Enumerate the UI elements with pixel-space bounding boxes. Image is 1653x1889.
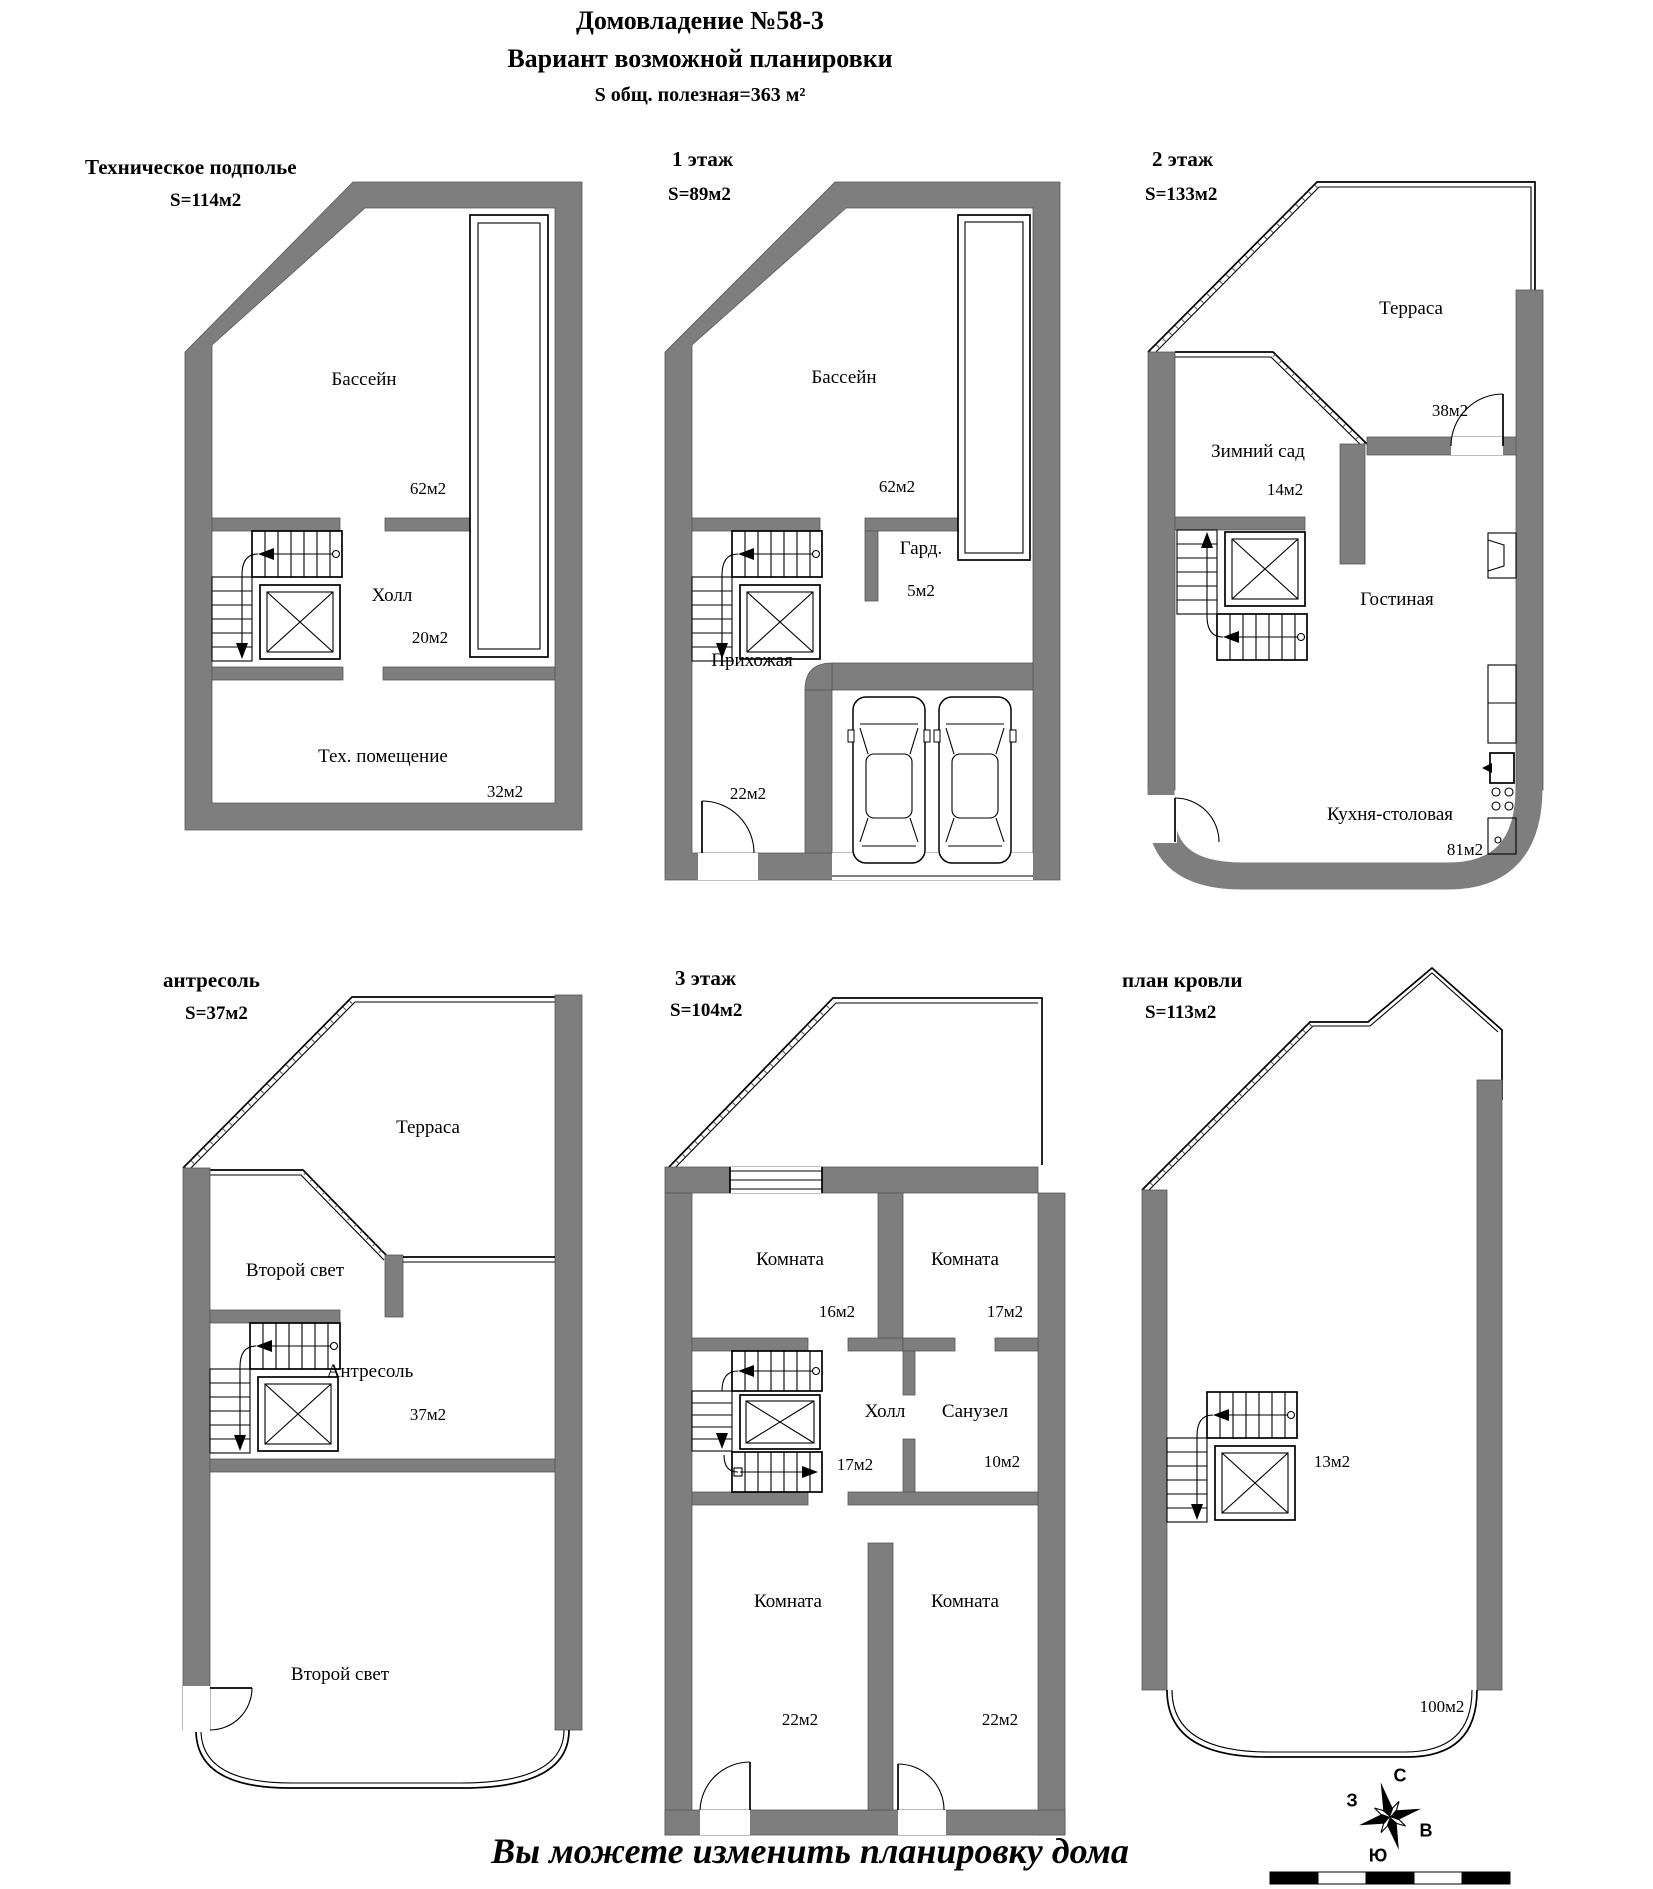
compass-east: В xyxy=(1420,1821,1433,1842)
room-area-pool: 62м2 xyxy=(410,479,446,499)
room-label-terrace: Терраса xyxy=(1379,298,1443,320)
room-label-hall: Холл xyxy=(372,585,413,607)
room-label-pool: Бассейн xyxy=(331,369,396,391)
room-area-room-tl: 16м2 xyxy=(819,1302,855,1322)
kitchen-fixtures-icon xyxy=(1482,533,1516,854)
plan-roof-area: S=113м2 xyxy=(1145,1002,1216,1024)
room-label-room-bl: Комната xyxy=(754,1591,822,1613)
room-label-entrance: Прихожая xyxy=(711,650,793,672)
compass-rose-icon xyxy=(1350,1774,1430,1858)
plan-floor3-title: 3 этаж xyxy=(675,966,736,991)
plans-drawing xyxy=(0,0,1653,1889)
stairs-icon xyxy=(1167,1392,1297,1522)
room-label-hall: Холл xyxy=(865,1401,906,1423)
room-label-mezzanine: Антресоль xyxy=(327,1361,414,1383)
plan-floor2-title: 2 этаж xyxy=(1152,147,1213,172)
plan-basement-title: Техническое подполье xyxy=(85,155,297,180)
car-icon xyxy=(848,697,930,863)
room-label-living: Гостиная xyxy=(1360,589,1434,611)
compass-south: Ю xyxy=(1369,1846,1388,1867)
room-area-pool: 62м2 xyxy=(879,477,915,497)
plan-basement-drawing xyxy=(185,182,582,830)
room-label-tech: Тех. помещение xyxy=(318,746,448,768)
room-area-roof: 100м2 xyxy=(1420,1697,1465,1717)
room-label-room-tl: Комната xyxy=(756,1249,824,1271)
room-area-roof-stairs: 13м2 xyxy=(1314,1452,1350,1472)
compass-west: З xyxy=(1346,1791,1357,1812)
plan-floor1-area: S=89м2 xyxy=(668,184,731,206)
room-label-void-upper: Второй свет xyxy=(246,1260,344,1282)
room-label-pool: Бассейн xyxy=(811,367,876,389)
room-label-void-lower: Второй свет xyxy=(291,1664,389,1686)
scale-bar xyxy=(1270,1872,1510,1884)
plan-basement-area: S=114м2 xyxy=(170,190,241,212)
plan-mezzanine-area: S=37м2 xyxy=(185,1003,248,1025)
room-area-kitchen: 81м2 xyxy=(1447,840,1483,860)
car-icon xyxy=(934,697,1016,863)
room-area-tech: 32м2 xyxy=(487,782,523,802)
sheet-title: Домовладение №58-3 xyxy=(300,6,1100,36)
room-label-kitchen: Кухня-столовая xyxy=(1327,804,1453,826)
plan-floor1-title: 1 этаж xyxy=(672,147,733,172)
plan-mezzanine-title: антресоль xyxy=(163,968,260,993)
plan-floor2-drawing xyxy=(1146,182,1543,876)
stairs-icon xyxy=(692,1351,822,1492)
room-area-mezzanine: 37м2 xyxy=(410,1405,446,1425)
footer-note: Вы можете изменить планировку дома xyxy=(410,1830,1210,1872)
room-label-wardrobe: Гард. xyxy=(900,538,943,560)
room-area-hall: 20м2 xyxy=(412,628,448,648)
room-label-room-br: Комната xyxy=(931,1591,999,1613)
room-area-room-br: 22м2 xyxy=(982,1710,1018,1730)
total-area: S общ. полезная=363 м² xyxy=(300,84,1100,107)
room-label-terrace: Терраса xyxy=(396,1117,460,1139)
stairs-icon xyxy=(692,531,822,661)
floorplan-sheet: Домовладение №58-3 Вариант возможной пла… xyxy=(0,0,1653,1889)
stairs-icon xyxy=(210,1323,340,1453)
room-label-room-tr: Комната xyxy=(931,1249,999,1271)
plan-roof-title: план кровли xyxy=(1122,968,1242,993)
plan-floor3-area: S=104м2 xyxy=(670,1000,742,1022)
room-label-bathroom: Санузел xyxy=(942,1401,1008,1423)
room-area-hall: 17м2 xyxy=(837,1455,873,1475)
room-area-room-bl: 22м2 xyxy=(782,1710,818,1730)
plan-floor2-area: S=133м2 xyxy=(1145,184,1217,206)
plan-floor1-drawing xyxy=(665,182,1060,880)
room-area-winter-garden: 14м2 xyxy=(1267,480,1303,500)
compass-north: С xyxy=(1394,1766,1407,1787)
stairs-icon xyxy=(212,531,342,661)
room-label-winter-garden: Зимний сад xyxy=(1211,441,1305,463)
sheet-subtitle: Вариант возможной планировки xyxy=(300,44,1100,74)
room-area-wardrobe: 5м2 xyxy=(907,581,935,601)
room-area-terrace: 38м2 xyxy=(1432,401,1468,421)
room-area-room-tr: 17м2 xyxy=(987,1302,1023,1322)
room-area-bathroom: 10м2 xyxy=(984,1452,1020,1472)
stairs-icon xyxy=(1177,530,1307,660)
plan-roof-drawing xyxy=(1142,968,1502,1757)
room-area-entrance: 22м2 xyxy=(730,784,766,804)
